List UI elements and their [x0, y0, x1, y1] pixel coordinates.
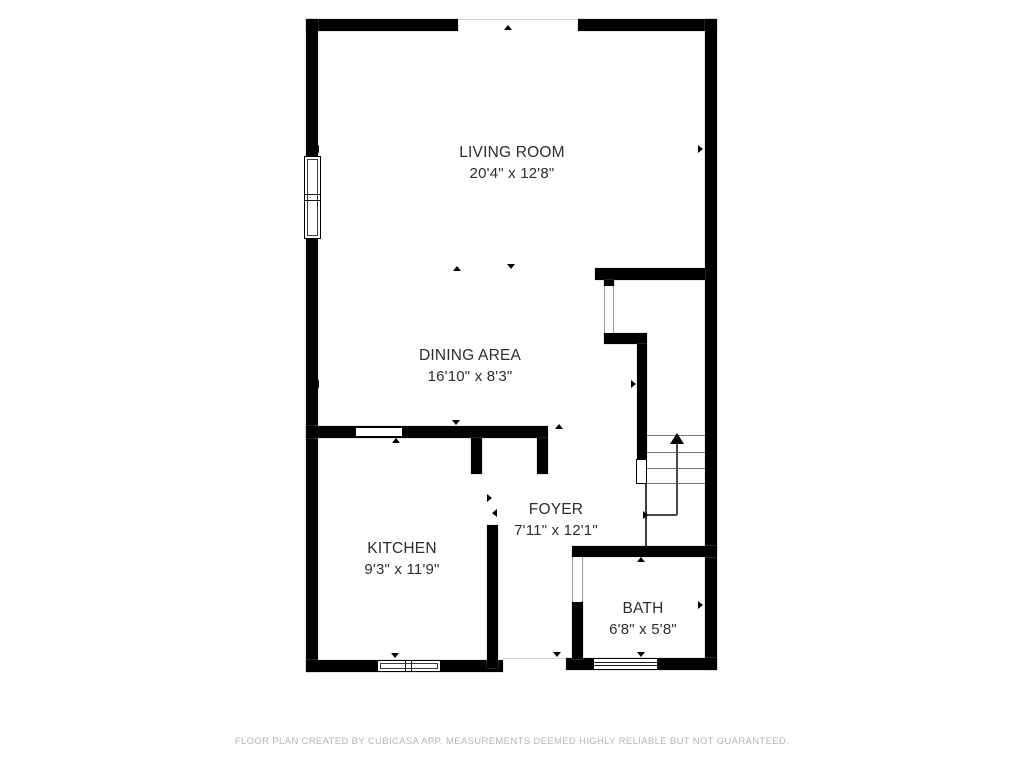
door-direction-marker-icon [698, 145, 703, 153]
room-label-bath: BATH 6'8" x 5'8" [609, 598, 677, 640]
room-label-foyer: FOYER 7'11" x 12'1" [514, 499, 598, 541]
door-direction-marker-icon [487, 494, 492, 502]
room-dimensions: 6'8" x 5'8" [609, 619, 677, 640]
stairs-start-marker-icon [643, 511, 648, 519]
door-direction-marker-icon [492, 509, 497, 517]
door-direction-marker-icon [507, 264, 515, 269]
room-dimensions: 9'3" x 11'9" [364, 559, 439, 580]
window-dining [355, 427, 403, 437]
window-kitchen [377, 660, 441, 672]
wall-top-right-segment [578, 19, 717, 31]
room-label-kitchen: KITCHEN 9'3" x 11'9" [364, 538, 439, 580]
door-direction-marker-icon [578, 601, 583, 609]
wall-dining-kitchen-divider [306, 426, 548, 438]
door-direction-marker-icon [631, 380, 636, 388]
window-frame [307, 159, 318, 236]
stairs-direction-line [676, 444, 678, 515]
room-dimensions: 7'11" x 12'1" [514, 520, 598, 541]
room-label-living-room: LIVING ROOM 20'4" x 12'8" [459, 142, 565, 184]
stairs-direction-line [646, 514, 677, 516]
wall-stair-top [595, 268, 705, 280]
wall-left-upper [306, 19, 318, 157]
window-bath [593, 658, 658, 670]
threshold-top-entry [458, 19, 578, 20]
window-living-room [304, 156, 321, 239]
threshold-foyer-entry [503, 658, 566, 659]
window-divider [405, 661, 406, 671]
room-name: KITCHEN [364, 538, 439, 559]
wall-top-left-segment [306, 19, 458, 31]
wall-stair-corner [604, 333, 647, 344]
wall-left-lower [306, 238, 318, 672]
window-divider [305, 200, 320, 201]
window-divider [594, 665, 657, 666]
wall-kitchen-foyer [487, 525, 498, 668]
footer-disclaimer: FLOOR PLAN CREATED BY CUBICASA APP. MEAS… [235, 736, 789, 747]
stair-wall-opening [636, 459, 647, 484]
door-direction-marker-icon [452, 420, 460, 425]
door-direction-marker-icon [453, 266, 461, 271]
window-divider [305, 194, 320, 195]
door-opening-bath [572, 557, 583, 602]
window-divider [594, 662, 657, 663]
room-dimensions: 16'10" x 8'3" [419, 366, 521, 387]
door-direction-marker-icon [314, 145, 319, 153]
stairs-up-arrow-icon [670, 433, 684, 444]
door-direction-marker-icon [637, 557, 645, 562]
wall-bath-left-lower [572, 602, 583, 659]
room-label-dining-area: DINING AREA 16'10" x 8'3" [419, 345, 521, 387]
door-direction-marker-icon [553, 652, 561, 657]
room-name: DINING AREA [419, 345, 521, 366]
door-direction-marker-icon [392, 438, 400, 443]
room-name: LIVING ROOM [459, 142, 565, 163]
wall-stair-side [637, 344, 647, 460]
door-direction-marker-icon [391, 653, 399, 658]
floor-plan-canvas: LIVING ROOM 20'4" x 12'8" DINING AREA 16… [0, 0, 1024, 768]
door-opening-stair-closet [604, 286, 614, 333]
door-direction-marker-icon [698, 601, 703, 609]
door-direction-marker-icon [637, 652, 645, 657]
wall-bath-top [572, 546, 717, 557]
wall-doorway-stub-left [471, 438, 482, 474]
door-direction-marker-icon [314, 380, 319, 388]
wall-doorway-stub-right [537, 438, 548, 474]
room-name: BATH [609, 598, 677, 619]
room-name: FOYER [514, 499, 598, 520]
wall-right [705, 19, 717, 670]
door-direction-marker-icon [504, 25, 512, 30]
window-frame [380, 663, 438, 669]
door-direction-marker-icon [555, 424, 563, 429]
room-dimensions: 20'4" x 12'8" [459, 163, 565, 184]
window-divider [411, 661, 412, 671]
